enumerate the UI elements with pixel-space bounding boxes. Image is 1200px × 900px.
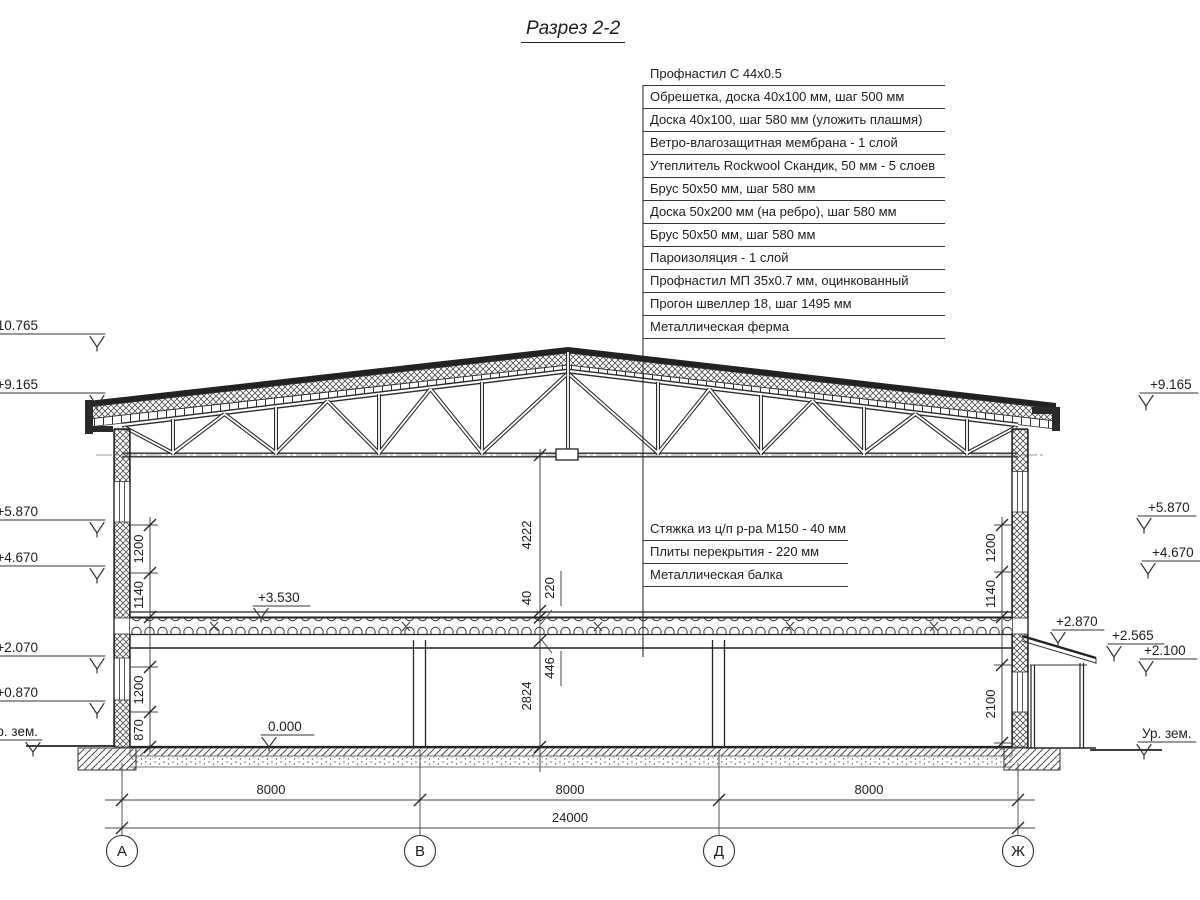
elevation-value: +3.530 (258, 590, 300, 605)
dim-left-1200a: 1200 (131, 535, 146, 564)
annex (1022, 636, 1096, 748)
drawing-title: Разрез 2-2 (521, 18, 625, 43)
chord-splice-plate (556, 449, 578, 460)
elevation-mark-left-3: +4.670 (0, 550, 105, 583)
axis-label-zh: Ж (1011, 843, 1025, 860)
floor-screed-hatch (130, 748, 1012, 756)
dim-bottom: 8000 8000 8000 24000 А В Д Ж (105, 750, 1035, 867)
axis-bubble-d: Д (704, 836, 735, 867)
roof-callout-row: Брус 50х50 мм, шаг 580 мм (643, 178, 945, 201)
elevation-mark-left-2: +5.870 (0, 504, 105, 537)
dim-right-2100: 2100 (983, 690, 998, 719)
roof-callout-row: Прогон швеллер 18, шаг 1495 мм (643, 293, 945, 316)
roof-callout-row: Доска 40х100, шаг 580 мм (уложить плашмя… (643, 109, 945, 132)
dim-screed: 40 (519, 591, 534, 605)
annex-posts (1031, 663, 1084, 748)
elevation-value: +2.565 (1112, 628, 1154, 643)
left-gutter-profile (85, 426, 113, 432)
right-fascia (1052, 407, 1060, 431)
elevation-value: +2.070 (0, 640, 38, 655)
roof-callout-row: Ветро-влагозащитная мембрана - 1 слой (643, 132, 945, 155)
elevation-marks-left: +10.765 +9.165 +5.870 +4.670 +2.070 +0.8… (0, 318, 105, 756)
right-wall (1012, 429, 1028, 747)
roof-callout-row: Доска 50х200 мм (на ребро), шаг 580 мм (643, 201, 945, 224)
floor-base-layer (130, 757, 1012, 766)
roof-callout-row: Обрешетка, доска 40х100 мм, шаг 500 мм (643, 86, 945, 109)
axis-bubble-b: В (405, 836, 436, 867)
elevation-value: +10.765 (0, 318, 38, 333)
roof-callout-row: Металлическая ферма (643, 316, 945, 339)
section-drawing: 4222 40 220 446 2824 1200 1140 1200 870 … (0, 0, 1200, 900)
floor-slab (130, 612, 1012, 648)
roof-callout-row: Профнастил МП 35х0.7 мм, оцинкованный (643, 270, 945, 293)
elevation-mark-right-1: +5.870 (1137, 500, 1196, 533)
axis-bubble-zh: Ж (1003, 836, 1034, 867)
axis-label-d: Д (714, 843, 724, 860)
dim-beam: 446 (542, 657, 557, 679)
dim-span-1: 8000 (257, 782, 286, 797)
roof-callout-row: Пароизоляция - 1 слой (643, 247, 945, 270)
roof-callout-row: Утеплитель Rockwool Скандик, 50 мм - 5 с… (643, 155, 945, 178)
dim-left-1200b: 1200 (131, 676, 146, 705)
elevation-mark-right-2: +4.670 (1141, 545, 1200, 578)
floor-callout-row: Стяжка из ц/п р-ра М150 - 40 мм (643, 518, 848, 541)
elevation-mark-right-3: +2.870 (1051, 614, 1104, 647)
hollow-core-band (130, 619, 1012, 635)
dim-right-1140: 1140 (983, 580, 998, 608)
dim-left-1140: 1140 (131, 581, 146, 609)
axis-label-a: А (117, 843, 127, 860)
elevation-mark-right-0: +9.165 (1139, 377, 1198, 410)
roof-callout-row: Брус 50х50 мм, шаг 580 мм (643, 224, 945, 247)
elevation-value: +4.670 (0, 550, 38, 565)
floor-callout-table: Стяжка из ц/п р-ра М150 - 40 мм Плиты пе… (643, 518, 848, 587)
elevation-value: Ур. зем. (1142, 726, 1192, 741)
dim-total: 24000 (552, 810, 588, 825)
dim-right-1200: 1200 (983, 534, 998, 563)
dim-span-2: 8000 (556, 782, 585, 797)
elevation-value: +2.870 (1056, 614, 1098, 629)
interior-columns (414, 640, 725, 747)
elevation-mark-right-ground: Ур. зем. (1137, 726, 1196, 759)
elevation-mark-left-ground: Ур. зем. (0, 724, 42, 756)
roof-callout-table: Профнастил С 44х0.5 Обрешетка, доска 40х… (643, 63, 945, 339)
dim-span-3: 8000 (855, 782, 884, 797)
axis-label-b: В (415, 843, 425, 860)
elevation-value: +5.870 (0, 504, 38, 519)
ground-floor (26, 746, 1162, 767)
annex-roof (1022, 636, 1096, 658)
elevation-value: +0.870 (0, 685, 38, 700)
elevation-value: +4.670 (1152, 545, 1194, 560)
elevation-mark-left-4: +2.070 (0, 640, 105, 673)
elevation-marks-interior: +3.530 0.000 (253, 590, 314, 751)
elevation-mark-left-0: +10.765 (0, 318, 105, 351)
elevation-mark-right-5: +2.100 (1139, 643, 1197, 676)
elevation-value: 0.000 (268, 719, 302, 734)
elevation-marks-right: +9.165 +5.870 +4.670 +2.870 +2.565 +2.10… (1051, 377, 1200, 759)
dim-left-870: 870 (131, 719, 146, 741)
elevation-value: +5.870 (1148, 500, 1190, 515)
dim-slab: 220 (542, 577, 557, 599)
left-wall (114, 429, 130, 747)
elevation-value: +9.165 (0, 377, 38, 392)
elevation-mark-left-5: +0.870 (0, 685, 105, 718)
dim-truss-to-floor: 4222 (519, 521, 534, 550)
axis-bubble-a: А (107, 836, 138, 867)
elevation-value: +2.100 (1144, 643, 1186, 658)
floor-callout-row: Металлическая балка (643, 564, 848, 587)
elevation-value: Ур. зем. (0, 724, 38, 739)
dim-floor-height: 2824 (519, 682, 534, 711)
elevation-value: +9.165 (1150, 377, 1192, 392)
floor-callout-row: Плиты перекрытия - 220 мм (643, 541, 848, 564)
roof-callout-row: Профнастил С 44х0.5 (643, 63, 945, 86)
dim-vertical-center: 4222 40 220 446 2824 (519, 449, 561, 772)
